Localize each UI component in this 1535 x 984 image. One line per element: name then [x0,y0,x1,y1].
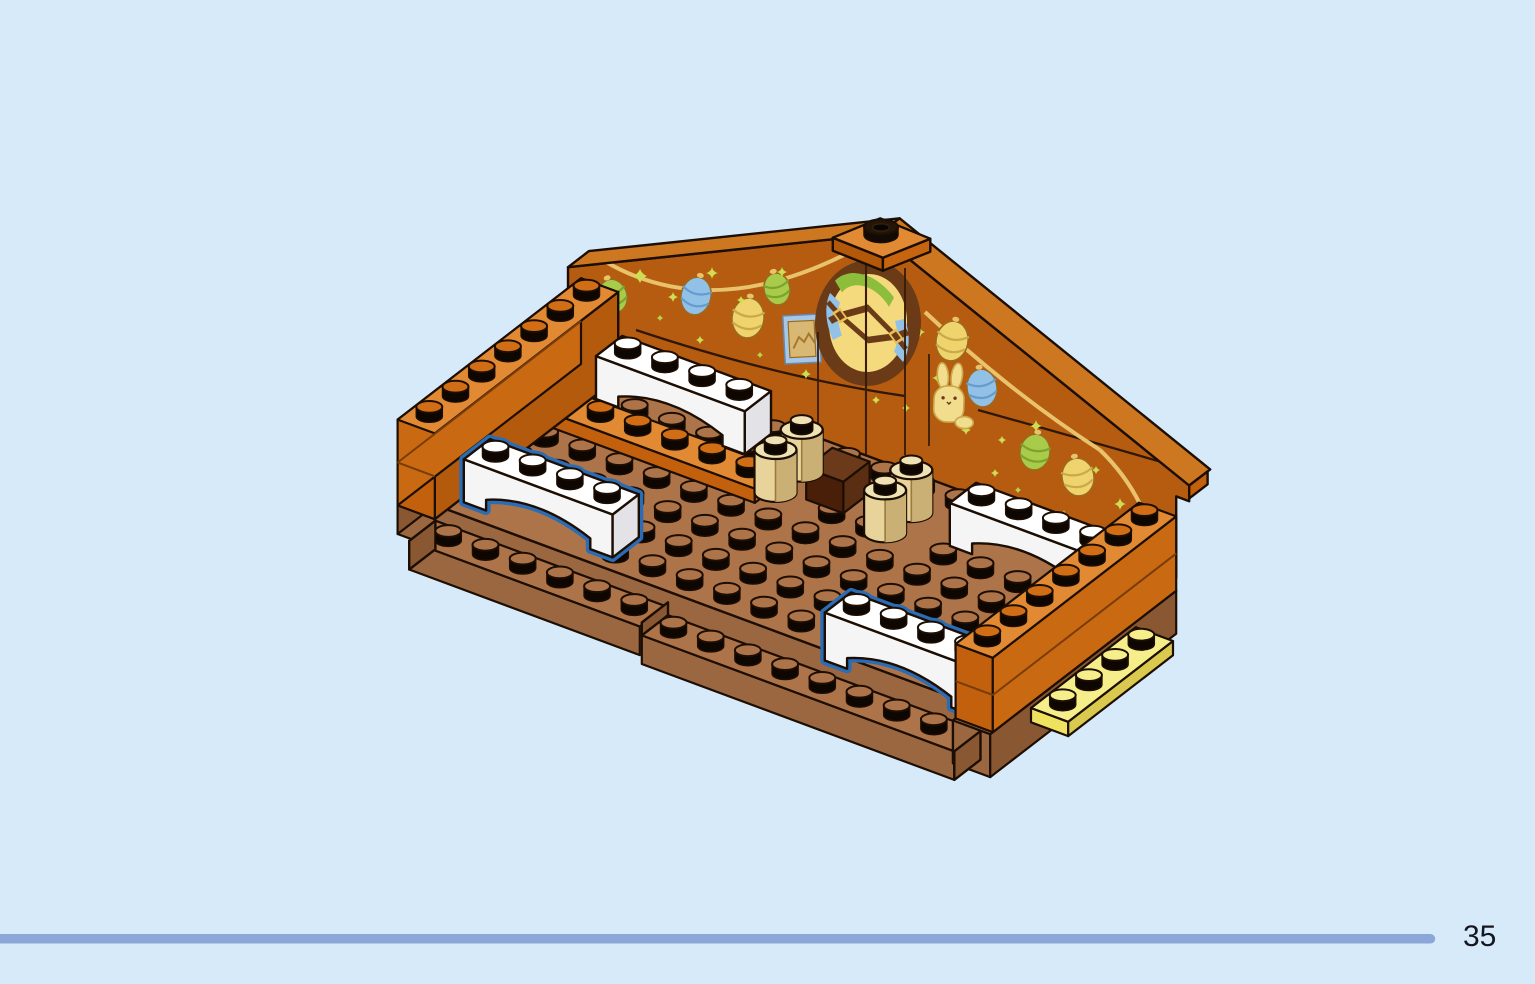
svg-text:35: 35 [1463,920,1496,953]
